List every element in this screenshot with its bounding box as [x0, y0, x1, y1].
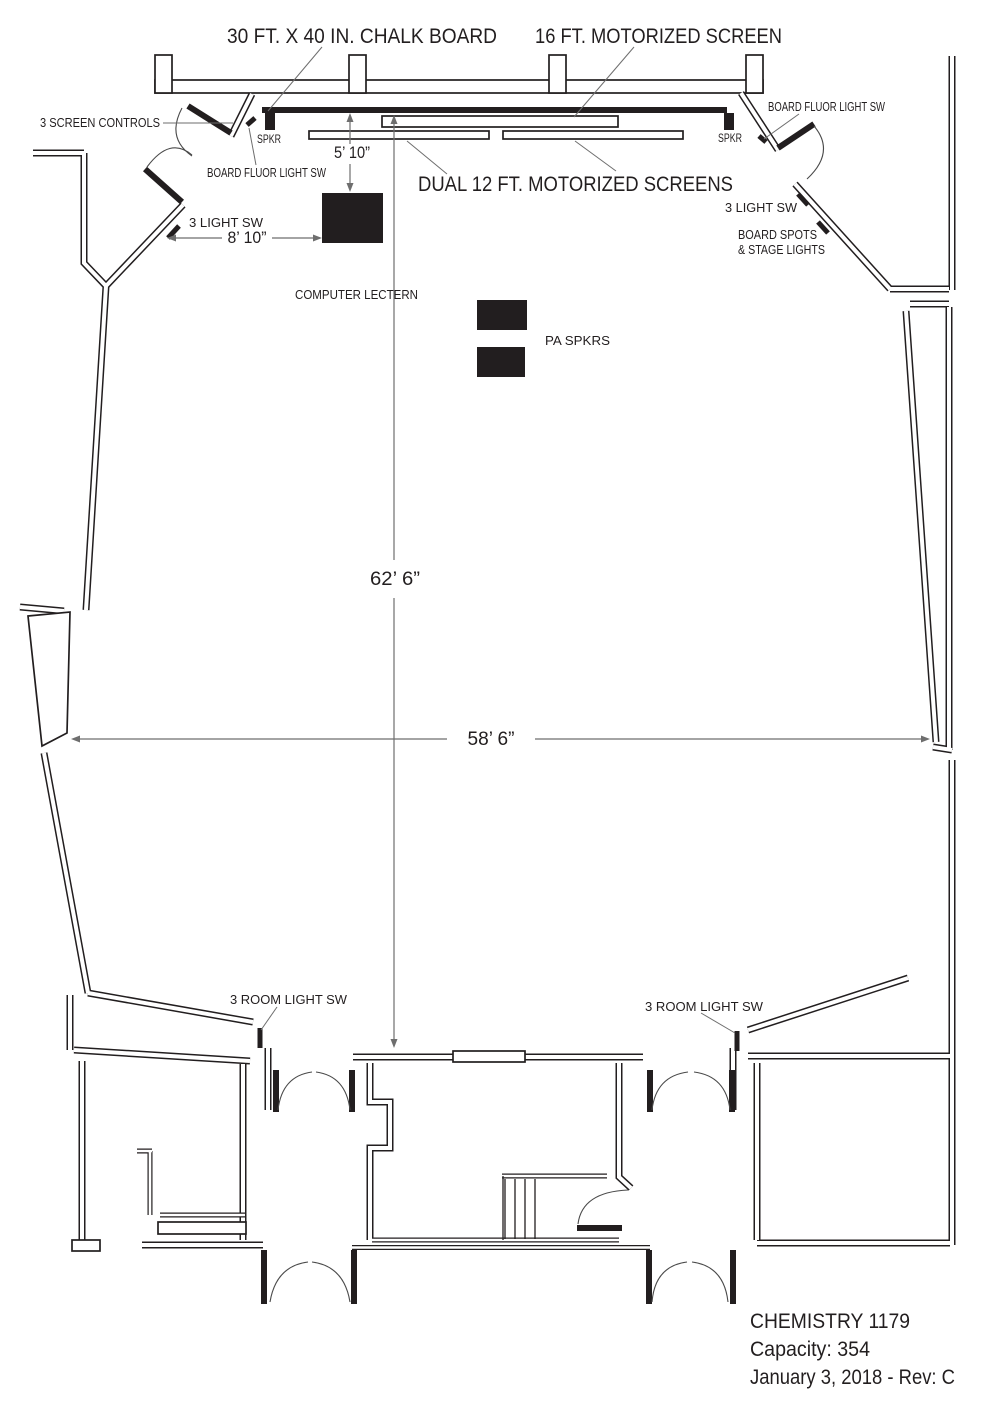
title-block: CHEMISTRY 1179 Capacity: 354 January 3, …: [750, 1310, 955, 1389]
pillar: [155, 55, 172, 93]
stair-treads: [505, 1179, 535, 1239]
motorized-screen-16ft: [382, 116, 618, 127]
pa-spkrs-label: PA SPKRS: [545, 334, 610, 348]
spkr-left-label: SPKR: [257, 134, 281, 146]
chalk-board-label: 30 FT. X 40 IN. CHALK BOARD: [227, 25, 497, 48]
light-sw-right-label: 3 LIGHT SW: [725, 201, 797, 215]
room-light-sw-left-label: 3 ROOM LIGHT SW: [230, 993, 347, 1007]
labels: 30 FT. X 40 IN. CHALK BOARD 16 FT. MOTOR…: [40, 25, 885, 1014]
dual-screens-label: DUAL 12 FT. MOTORIZED SCREENS: [418, 173, 733, 196]
doors: [145, 106, 823, 1304]
screen-controls-label: 3 SCREEN CONTROLS: [40, 116, 160, 130]
board-fluor-switch-left: [247, 118, 255, 125]
speaker-right: [724, 113, 734, 130]
room-name: CHEMISTRY 1179: [750, 1310, 910, 1333]
chalk-board: [262, 107, 727, 113]
door-leaf: [778, 124, 814, 148]
pa-speaker-bottom: [477, 347, 525, 377]
board-fluor-left-label: BOARD FLUOR LIGHT SW: [207, 166, 326, 180]
dim-5-10: 5’ 10”: [334, 143, 370, 162]
board-spots-label: BOARD SPOTS: [738, 228, 817, 242]
floor-plan-page: 30 FT. X 40 IN. CHALK BOARD 16 FT. MOTOR…: [0, 0, 1000, 1413]
computer-lectern: [322, 193, 383, 243]
board-fluor-right-label: BOARD FLUOR LIGHT SW: [768, 100, 885, 114]
spkr-right-label: SPKR: [718, 133, 742, 145]
room-light-sw-right-label: 3 ROOM LIGHT SW: [645, 1000, 763, 1014]
speaker-left: [265, 113, 275, 130]
closet-counter: [158, 1222, 246, 1234]
floor-plan-canvas: 30 FT. X 40 IN. CHALK BOARD 16 FT. MOTOR…: [0, 0, 1000, 1413]
motorized-screen-12ft-right: [503, 131, 683, 139]
screen-16ft-label: 16 FT. MOTORIZED SCREEN: [535, 25, 782, 48]
pillar: [349, 55, 366, 93]
dim-8-10: 8’ 10”: [228, 228, 267, 247]
left-wall-alcove: [28, 612, 70, 746]
motorized-screen-12ft-left: [309, 131, 489, 139]
switch-marks: [168, 118, 828, 1051]
stage-lights-label: & STAGE LIGHTS: [738, 243, 825, 257]
wall-foot: [72, 1240, 100, 1251]
stairwell: [503, 1176, 535, 1240]
room-capacity: Capacity: 354: [750, 1338, 870, 1361]
computer-lectern-label: COMPUTER LECTERN: [295, 288, 418, 302]
dim-62-6: 62’ 6”: [370, 569, 420, 590]
top-wall-band: [155, 55, 763, 93]
door-leaf: [188, 106, 231, 133]
vestibule-window: [453, 1051, 525, 1062]
pillar: [549, 55, 566, 93]
pa-speaker-top: [477, 300, 527, 330]
date-revision: January 3, 2018 - Rev: C: [750, 1366, 955, 1389]
dim-58-6: 58’ 6”: [468, 729, 515, 750]
board-fluor-switch-right: [759, 136, 766, 142]
door-leaf: [145, 169, 182, 202]
pillar: [746, 55, 763, 93]
